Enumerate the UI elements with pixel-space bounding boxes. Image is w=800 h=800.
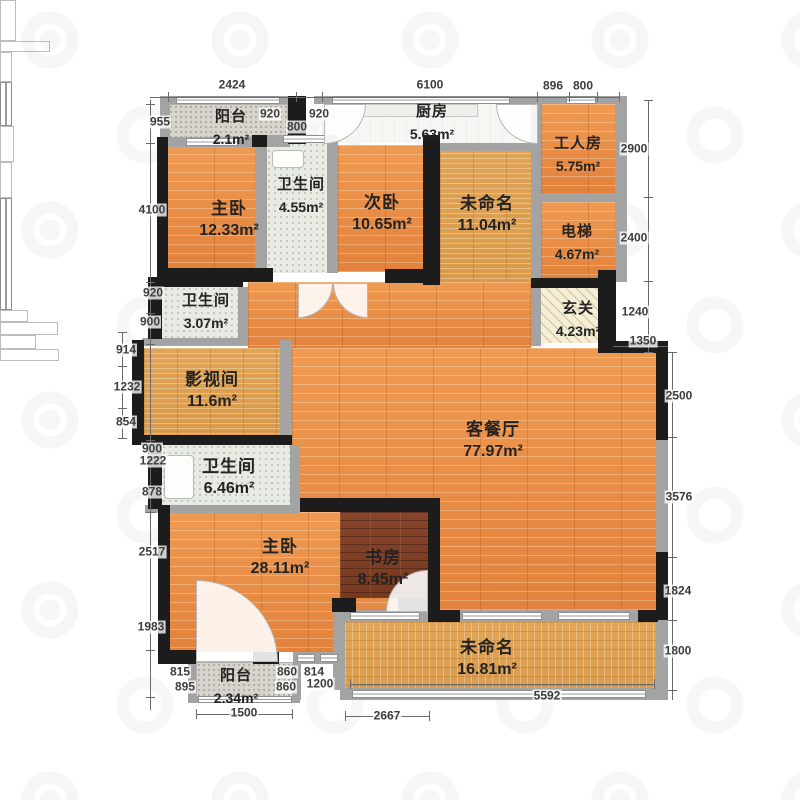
window — [297, 654, 315, 662]
dim-line-left — [150, 100, 151, 710]
wall — [531, 278, 601, 288]
window — [352, 690, 646, 698]
dim-914: 914 — [115, 344, 137, 357]
label-study: 书房8.45m² — [358, 547, 409, 591]
bathroom-basin — [164, 455, 194, 499]
wall — [142, 338, 248, 346]
wall — [252, 135, 267, 147]
dim-line-5592 — [350, 684, 655, 685]
bathroom-top-door — [0, 335, 36, 349]
dim-920b: 920 — [308, 108, 330, 121]
window — [462, 612, 542, 620]
window — [0, 198, 12, 310]
label-bathroom-mid: 卫生间3.07m² — [182, 290, 230, 334]
door-opening — [0, 162, 12, 198]
wall — [423, 135, 440, 285]
label-master-top: 主卧12.33m² — [199, 198, 259, 242]
window — [283, 135, 325, 143]
wall — [333, 610, 345, 690]
label-media-room: 影视间11.6m² — [185, 369, 239, 413]
window — [0, 82, 12, 126]
dim-2500: 2500 — [665, 390, 694, 403]
label-unnamed-bottom: 未命名16.81m² — [457, 637, 517, 681]
wall — [158, 650, 196, 664]
wall — [238, 287, 248, 338]
dim-1824: 1824 — [664, 585, 693, 598]
window — [558, 612, 630, 620]
label-worker-room: 工人房5.75m² — [554, 133, 602, 177]
dim-2667: 2667 — [373, 710, 402, 723]
wall — [540, 193, 617, 202]
wall — [615, 96, 627, 282]
balcony-bottom-door-opening — [0, 349, 59, 361]
wall — [158, 505, 170, 660]
label-second-bedroom: 次卧10.65m² — [352, 192, 412, 236]
dim-6100: 6100 — [416, 79, 445, 92]
wall — [280, 340, 292, 445]
label-entry-hall: 玄关4.23m² — [556, 298, 600, 342]
dim-2517: 2517 — [138, 546, 167, 559]
wall — [327, 143, 338, 273]
dim-3576: 3576 — [665, 491, 694, 504]
wall — [290, 445, 300, 508]
bathroom-fixture — [272, 150, 304, 168]
dim-878: 878 — [141, 486, 163, 499]
label-living-dining: 客餐厅77.97m² — [463, 419, 523, 463]
label-kitchen: 厨房5.63m² — [410, 101, 454, 145]
dim-920a: 920 — [259, 108, 281, 121]
dim-1240: 1240 — [621, 306, 650, 319]
dim-815: 815 — [169, 666, 191, 679]
dim-955: 955 — [149, 116, 171, 129]
wall — [385, 269, 440, 283]
dim-800: 800 — [572, 80, 594, 93]
label-elevator: 电梯4.67m² — [555, 221, 599, 265]
label-balcony-top: 阳台2.1m² — [213, 106, 250, 150]
dim-860a: 860 — [276, 666, 298, 679]
dim-1222: 1222 — [139, 455, 168, 468]
dim-2424: 2424 — [218, 79, 247, 92]
entry-sliding-door — [0, 41, 50, 52]
dim-1350: 1350 — [629, 335, 658, 348]
label-bathroom-low: 卫生间6.46m² — [202, 456, 256, 500]
dim-895: 895 — [174, 681, 196, 694]
dim-920c: 920 — [142, 287, 164, 300]
dim-2400: 2400 — [620, 232, 649, 245]
dim-896: 896 — [542, 80, 564, 93]
living-sliding-door — [0, 322, 58, 335]
dim-line-top — [150, 97, 620, 98]
label-balcony-bottom: 阳台2.34m² — [214, 665, 258, 709]
wall — [638, 610, 658, 622]
floor-plan-canvas: 2424 6100 896 800 920 800 920 955 4100 9… — [0, 0, 800, 800]
dim-800b: 800 — [286, 121, 308, 134]
dim-5592: 5592 — [533, 690, 562, 703]
door-opening — [0, 52, 12, 82]
dim-1232: 1232 — [113, 381, 142, 394]
wall-recess — [0, 0, 16, 41]
dim-860b: 860 — [275, 681, 297, 694]
wall — [332, 598, 356, 612]
dim-1983: 1983 — [137, 621, 166, 634]
label-master-bottom: 主卧28.11m² — [251, 536, 310, 580]
label-bathroom-top: 卫生间4.55m² — [277, 174, 325, 218]
living-corridor-floor — [248, 282, 531, 348]
window — [320, 654, 338, 662]
dim-4100: 4100 — [138, 204, 167, 217]
door-opening — [0, 126, 14, 162]
dim-900a: 900 — [139, 316, 161, 329]
label-unnamed-top: 未命名11.04m² — [458, 193, 517, 237]
master-top-door-opening — [0, 310, 28, 322]
wall — [531, 286, 541, 346]
dim-1200: 1200 — [306, 678, 335, 691]
wall — [300, 498, 440, 512]
window — [350, 612, 420, 620]
dim-1800: 1800 — [664, 645, 693, 658]
dim-854: 854 — [115, 416, 137, 429]
dim-2900: 2900 — [620, 143, 649, 156]
